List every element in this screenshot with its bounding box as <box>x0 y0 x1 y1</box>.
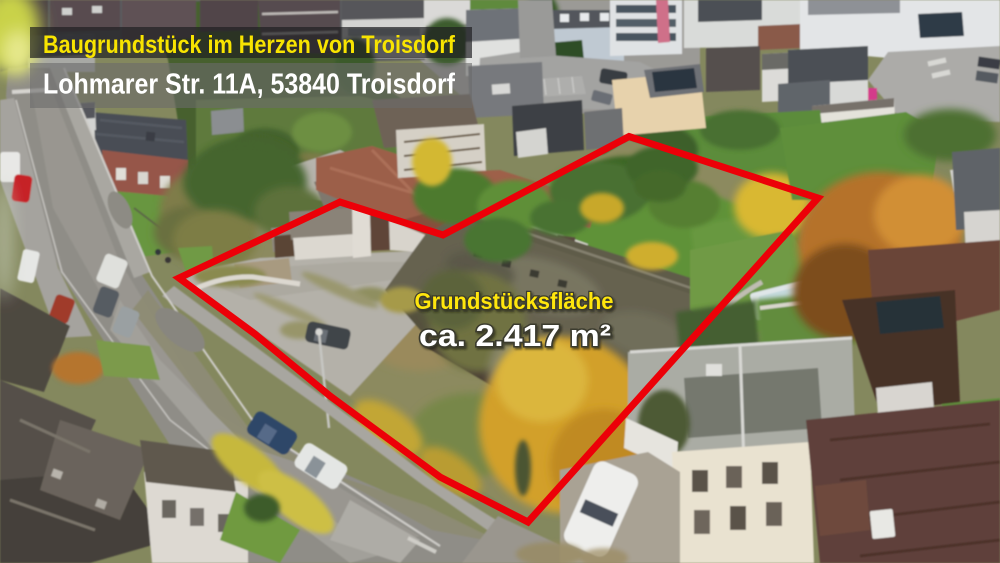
svg-text:ca. 2.417 m²: ca. 2.417 m² <box>419 318 611 353</box>
svg-text:Grundstücksfläche: Grundstücksfläche <box>415 288 614 314</box>
svg-text:Baugrundstück im Herzen von Tr: Baugrundstück im Herzen von Troisdorf <box>43 31 456 59</box>
svg-text:Lohmarer Str. 11A, 53840 Trois: Lohmarer Str. 11A, 53840 Troisdorf <box>43 69 455 101</box>
